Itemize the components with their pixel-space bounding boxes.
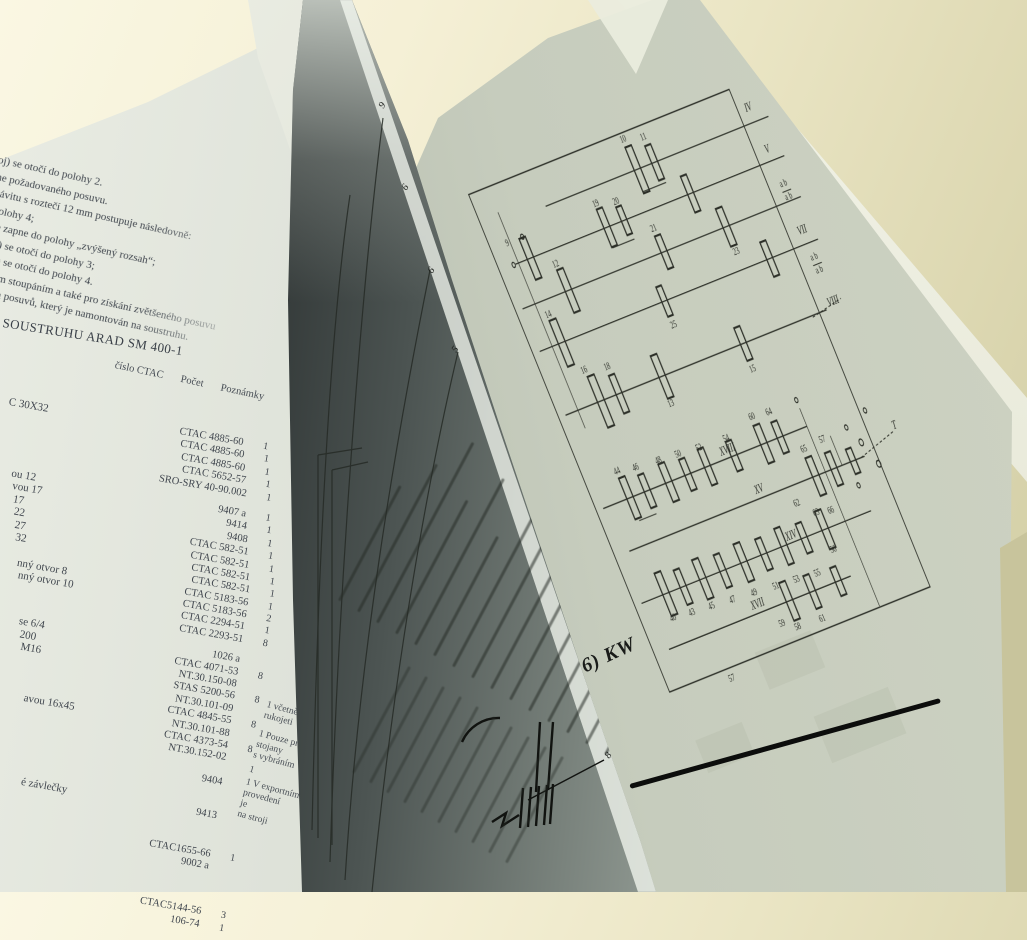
diagram-label: 25 — [668, 317, 678, 331]
diagram-label: 11 — [638, 130, 648, 144]
diagram-label: 63 — [811, 505, 821, 519]
photo-of-open-technical-manual: { "left_page": { "paragraph_lines": [ "o… — [0, 0, 1027, 892]
parts-num: 9413 — [115, 793, 217, 823]
diagram-label: a b — [808, 249, 819, 263]
diagram-label: a b — [777, 176, 788, 190]
diagram-label: 61 — [817, 611, 827, 625]
diagram-label: 14 — [543, 307, 554, 321]
diagram-label: 10 — [618, 132, 628, 146]
diagram-label: 9 — [503, 237, 510, 249]
diagram-label: 47 — [727, 592, 738, 606]
parts-frag — [23, 742, 122, 771]
diagram-label: XV — [752, 481, 767, 498]
diagram-label: IV — [742, 100, 755, 116]
parts-num: 9404 — [120, 759, 224, 789]
diagram-label: 57 — [817, 432, 828, 446]
diagram-label: 15 — [747, 361, 757, 375]
diagram-label: 44 — [612, 464, 623, 478]
diagram-label: 49 — [749, 585, 759, 599]
diagram-label: VIII — [825, 293, 841, 310]
diagram-label: 54 — [721, 431, 732, 445]
diagram-label: 65 — [798, 442, 808, 456]
diagram-label: 57 — [726, 670, 737, 684]
diagram-label: 18 — [602, 359, 612, 373]
diagram-label: 19 — [590, 196, 600, 210]
diagram-label: 20 — [611, 194, 621, 208]
diagram-label: 45 — [706, 599, 716, 613]
diagram-label: VII — [796, 223, 810, 239]
diagram-label: 53 — [791, 572, 801, 586]
diagram-label: 21 — [648, 221, 658, 235]
diagram-label: 55 — [812, 566, 822, 580]
diagram-label: T — [890, 418, 900, 432]
diagram-label: 62 — [791, 496, 801, 510]
diagram-label: 59 — [777, 616, 787, 630]
diagram-label: 66 — [825, 503, 836, 517]
diagram-label: 48 — [653, 453, 663, 467]
diagram-label: V — [763, 142, 773, 157]
diagram-label: a b — [813, 262, 824, 276]
diagram-label: 23 — [731, 244, 741, 258]
diagram-label: 12 — [550, 256, 560, 270]
diagram-label: 64 — [763, 404, 774, 418]
diagram-label: 46 — [630, 460, 641, 474]
diagram-label: 40 — [668, 611, 678, 625]
diagram-label: 58 — [792, 619, 802, 633]
diagram-label: a b — [783, 189, 794, 203]
diagram-label: 50 — [673, 447, 683, 461]
diagram-label: 16 — [579, 363, 590, 377]
diagram-label: 56 — [828, 542, 839, 556]
diagram-label: 43 — [686, 605, 696, 619]
diagram-label: 13 — [666, 396, 676, 410]
diagram-label: 60 — [746, 409, 756, 423]
parts-frag: é závlečky — [20, 776, 117, 805]
